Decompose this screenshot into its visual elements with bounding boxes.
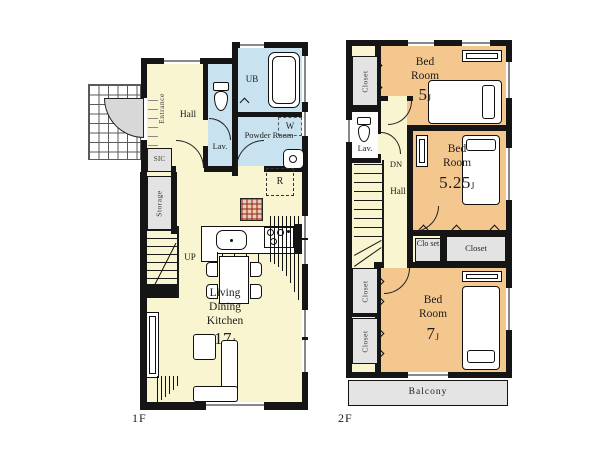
bed7-label-line1: Bed bbox=[398, 294, 468, 307]
pillow bbox=[467, 350, 495, 363]
entrance-label: Entrance bbox=[150, 68, 172, 148]
window bbox=[506, 148, 512, 200]
ldk-label-line1: Living bbox=[185, 287, 265, 300]
stair-tread bbox=[147, 230, 177, 231]
hatch-line bbox=[270, 216, 271, 262]
window bbox=[506, 288, 512, 330]
hall-label: Hall bbox=[172, 110, 204, 121]
hatch-line bbox=[274, 216, 275, 264]
ldk-label-line3: Kitchen bbox=[185, 315, 265, 328]
window bbox=[164, 58, 200, 64]
pillow bbox=[482, 85, 495, 119]
bed525-size: 5.25J bbox=[417, 173, 497, 192]
stair-tread bbox=[147, 254, 177, 255]
bath-label: UB bbox=[240, 74, 264, 84]
hatch-line bbox=[282, 216, 283, 271]
window bbox=[346, 120, 352, 142]
hatch-line bbox=[286, 216, 287, 276]
floor-2f-label: 2F bbox=[338, 412, 368, 425]
storage-label: Storage bbox=[147, 176, 172, 230]
window bbox=[302, 56, 308, 102]
sic-label: SIC bbox=[147, 155, 172, 163]
wall bbox=[407, 262, 506, 268]
hatch-line bbox=[161, 376, 162, 400]
lav-2f-label: Lav. bbox=[350, 144, 380, 154]
hatch-line bbox=[157, 376, 158, 402]
toilet-icon bbox=[213, 82, 229, 91]
sofa bbox=[193, 386, 238, 402]
window bbox=[302, 340, 308, 372]
hall-2f-label: Hall bbox=[383, 186, 413, 196]
dresser-inner bbox=[466, 274, 498, 279]
stair-edge bbox=[382, 160, 384, 262]
window bbox=[302, 112, 308, 136]
window bbox=[462, 40, 490, 46]
bed7-label-line2: Room bbox=[398, 308, 468, 321]
stair-tread bbox=[354, 200, 382, 201]
window bbox=[302, 216, 308, 238]
bed525-label-line2: Room bbox=[422, 157, 492, 170]
ottoman bbox=[193, 334, 216, 360]
window bbox=[302, 240, 308, 264]
kitchen-counter-leg bbox=[201, 252, 218, 262]
dn-label: DN bbox=[384, 160, 408, 170]
decor-mat bbox=[240, 198, 263, 221]
hatch-line bbox=[169, 376, 170, 394]
window bbox=[506, 62, 512, 98]
toilet-icon bbox=[357, 117, 371, 125]
window bbox=[408, 40, 434, 46]
fridge-label: R bbox=[266, 176, 294, 187]
closet-small-label: Clo set bbox=[415, 240, 441, 248]
closet-label: Closet bbox=[446, 244, 506, 254]
bed5-label-line1: Bed bbox=[390, 56, 460, 69]
window bbox=[408, 372, 448, 378]
stair-tread bbox=[147, 238, 177, 239]
stair-tread bbox=[354, 209, 382, 210]
window bbox=[302, 310, 308, 337]
hatch-line bbox=[173, 376, 174, 390]
closet-label: Closet bbox=[352, 318, 378, 364]
hatch-line bbox=[165, 376, 166, 397]
wall bbox=[407, 125, 506, 131]
up-label: UP bbox=[178, 252, 202, 262]
hatch-line bbox=[298, 216, 299, 300]
washbasin-bowl bbox=[289, 155, 297, 163]
tv-board-inner bbox=[149, 316, 156, 374]
dresser-inner bbox=[466, 53, 498, 59]
cabinet-line bbox=[258, 254, 259, 262]
bed5-size: 5J bbox=[390, 85, 460, 104]
stair-tread bbox=[354, 173, 382, 174]
balcony-label: Balcony bbox=[348, 387, 508, 398]
ldk-label-line2: Dining bbox=[185, 301, 265, 314]
window bbox=[206, 402, 264, 410]
stair-tread bbox=[354, 164, 382, 165]
stair-tread bbox=[147, 262, 177, 263]
hatch-line bbox=[177, 376, 178, 386]
stair-tread bbox=[354, 218, 382, 219]
hatch-line bbox=[290, 216, 291, 283]
bed525-label-line1: Bed bbox=[422, 143, 492, 156]
dining-chair bbox=[206, 262, 218, 277]
wall bbox=[232, 42, 238, 176]
closet-label: Closet bbox=[352, 268, 378, 314]
lav-label: Lav. bbox=[206, 142, 234, 152]
sink-drain bbox=[230, 239, 233, 242]
stair-tread bbox=[354, 182, 382, 183]
stair-tread bbox=[354, 227, 382, 228]
bed5-label-line2: Room bbox=[390, 70, 460, 83]
dining-chair bbox=[250, 262, 262, 277]
floor-1f-label: 1F bbox=[132, 412, 162, 425]
floor-plan: Entrance SIC Storage Hall Lav. UB Powder… bbox=[0, 0, 600, 450]
lavatory-floor bbox=[208, 64, 232, 170]
hatch-line bbox=[278, 216, 279, 267]
bed7-size: 7J bbox=[396, 324, 470, 343]
wall bbox=[407, 125, 413, 268]
hatch-line bbox=[294, 216, 295, 292]
washer-label: W bbox=[278, 121, 302, 131]
stair-tread bbox=[147, 278, 177, 279]
window bbox=[240, 42, 264, 48]
wall bbox=[352, 158, 381, 163]
bathtub-inner bbox=[272, 56, 296, 104]
stair-tread bbox=[354, 236, 382, 237]
stair-tread bbox=[354, 191, 382, 192]
